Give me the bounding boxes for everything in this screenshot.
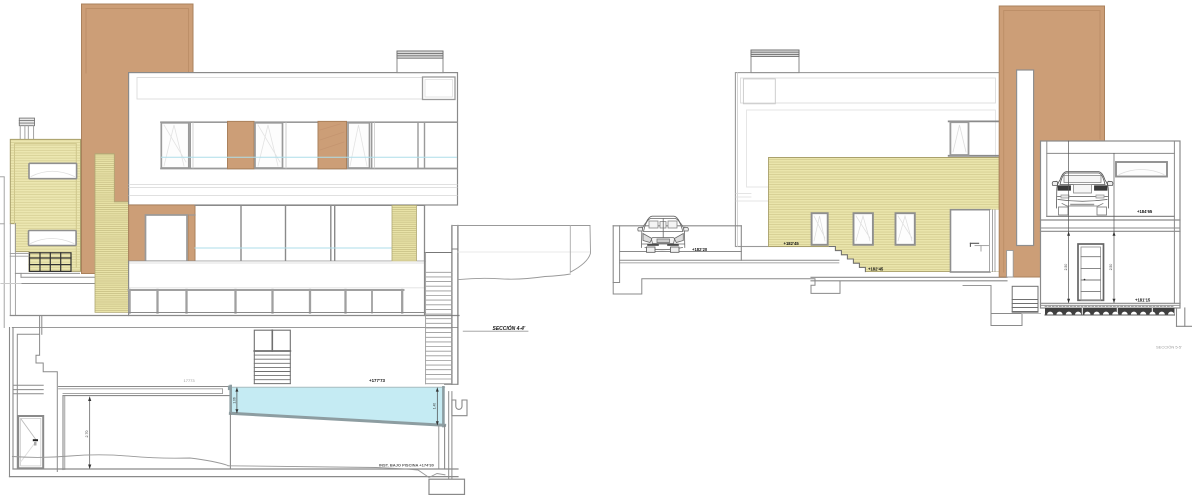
svg-text:17773: 17773 (184, 378, 196, 383)
svg-text:2.50: 2.50 (1064, 264, 1068, 271)
svg-text:1.06: 1.06 (232, 397, 236, 403)
svg-text:+182’45: +182’45 (784, 241, 800, 246)
svg-text:SECCIÓN 5-5’: SECCIÓN 5-5’ (1156, 345, 1182, 350)
svg-text:+177’73: +177’73 (369, 378, 386, 383)
svg-text:+184’65: +184’65 (1137, 209, 1153, 214)
svg-text:2.50: 2.50 (1109, 264, 1113, 271)
svg-text:+181’15: +181’15 (1135, 297, 1151, 302)
svg-text:INST. BAJO PISCINA +174’30: INST. BAJO PISCINA +174’30 (379, 463, 435, 468)
svg-text:+182’45: +182’45 (868, 266, 884, 271)
svg-text:+182’20: +182’20 (692, 247, 708, 252)
svg-text:2.70: 2.70 (85, 431, 89, 438)
svg-text:SECCIÓN 4-4’: SECCIÓN 4-4’ (493, 325, 526, 332)
svg-text:1.40: 1.40 (433, 403, 437, 409)
